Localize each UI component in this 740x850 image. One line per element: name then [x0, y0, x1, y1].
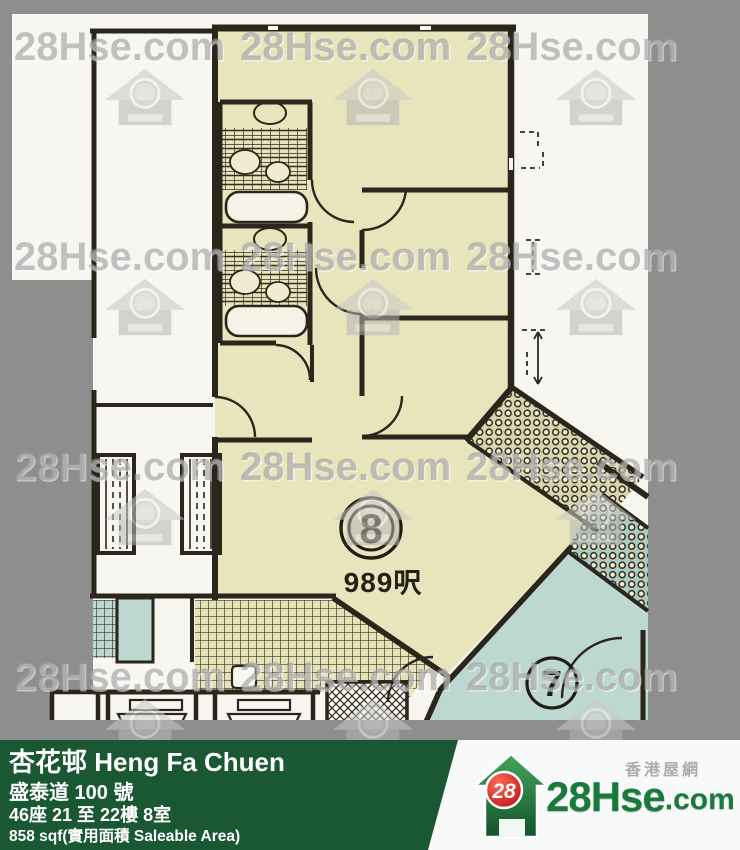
footer-bar: 杏花邨 Heng Fa Chuen 盛泰道 100 號 46座 21 至 22樓…: [0, 740, 740, 850]
watermark-text: 28Hse.com: [466, 235, 677, 279]
watermark-text: 28Hse.com: [466, 25, 677, 69]
watermark-house-icon: [105, 69, 185, 125]
watermark-text: 28Hse.com: [240, 25, 451, 69]
watermark-house-icon: [556, 279, 636, 335]
estate-name: 杏花邨 Heng Fa Chuen: [9, 742, 285, 779]
watermark-text: 28Hse.com: [466, 655, 677, 699]
watermark-house-icon: [333, 279, 413, 335]
watermark-layer: 28 28Hse.com28Hse.com28Hse.com28Hse.com2…: [0, 0, 740, 740]
brand-suffix: .com: [665, 782, 735, 818]
svg-text:28: 28: [491, 780, 516, 803]
watermark-house-icon: [105, 489, 185, 545]
watermark-text: 28Hse.com: [240, 445, 451, 489]
brand-wordmark: 28Hse.com: [546, 776, 735, 818]
watermark-house-icon: [333, 489, 413, 545]
brand-name: 28Hse: [546, 776, 665, 818]
28hse-house-icon: 28: [473, 751, 549, 841]
watermark-text: 28Hse.com: [14, 445, 225, 489]
saleable-area: 858 sqf(實用面積 Saleable Area): [9, 824, 240, 846]
watermark-text: 28Hse.com: [466, 445, 677, 489]
watermark-house-icon: [105, 699, 185, 740]
watermark-house-icon: [556, 699, 636, 740]
watermark-house-icon: [556, 69, 636, 125]
brand-tagline: 香港屋網: [625, 756, 701, 780]
watermark-house-icon: [333, 69, 413, 125]
watermark-text: 28Hse.com: [14, 25, 225, 69]
watermark-house-icon: [105, 279, 185, 335]
watermark-text: 28Hse.com: [14, 655, 225, 699]
screenshot-root: 8 989呎 7 28: [0, 0, 740, 850]
watermark-text: 28Hse.com: [240, 655, 451, 699]
watermark-text: 28Hse.com: [240, 235, 451, 279]
28hse-logo[interactable]: 28 28Hse.com 香港屋網: [458, 740, 740, 850]
watermark-house-icon: [556, 489, 636, 545]
watermark-house-icon: [333, 699, 413, 740]
floorplan-scan: 8 989呎 7 28: [0, 0, 740, 740]
watermark-text: 28Hse.com: [14, 235, 225, 279]
